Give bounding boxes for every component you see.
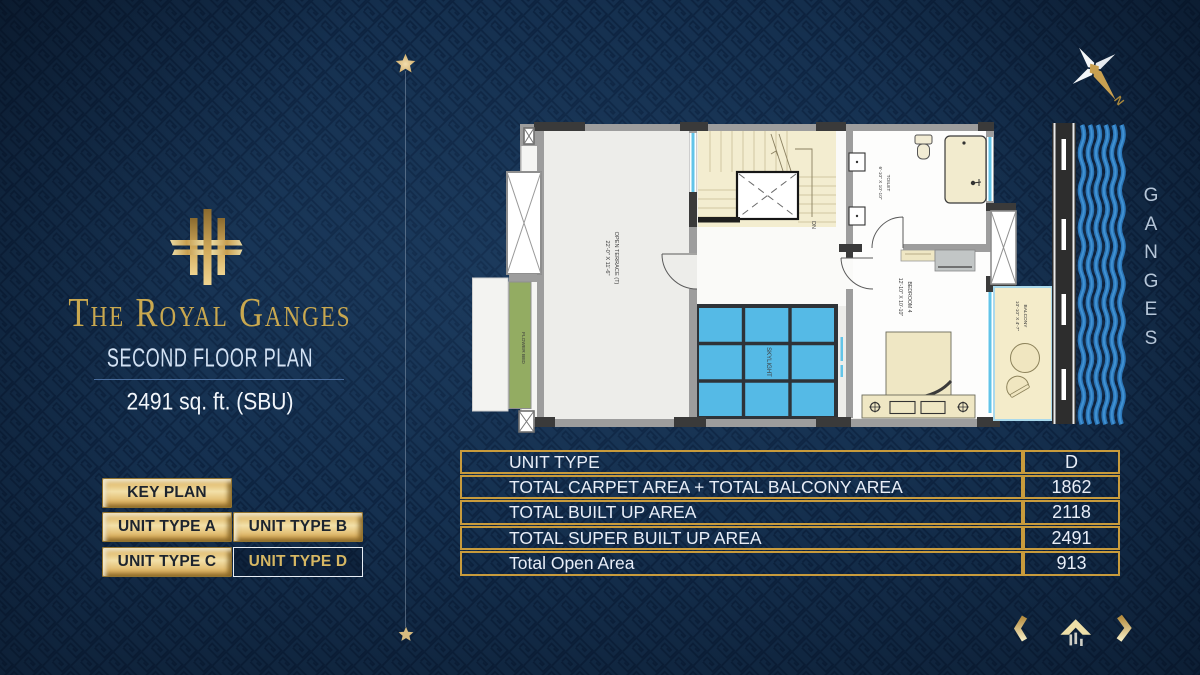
svg-text:FLOWER BED: FLOWER BED xyxy=(520,332,526,364)
svg-text:SKYLIGHT: SKYLIGHT xyxy=(765,347,771,377)
svg-text:DN: DN xyxy=(810,221,816,229)
